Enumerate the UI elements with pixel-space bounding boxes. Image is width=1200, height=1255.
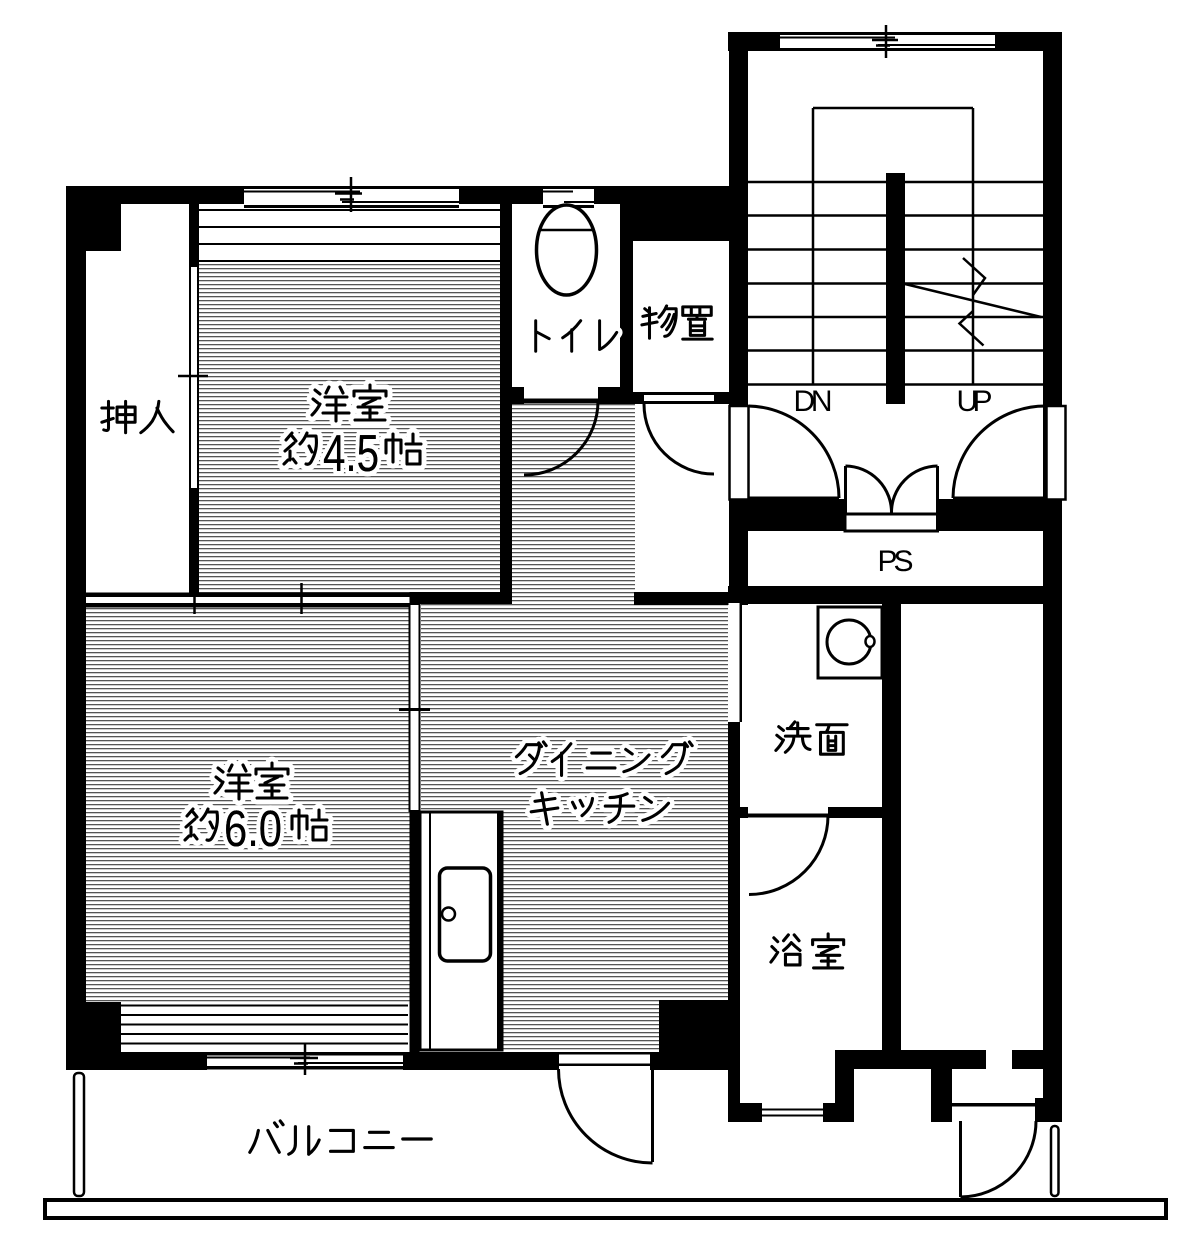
svg-text:4.5: 4.5	[323, 425, 379, 483]
svg-text:PS: PS	[878, 545, 914, 578]
svg-text:6.0: 6.0	[224, 800, 282, 857]
svg-text:DN: DN	[794, 385, 833, 418]
svg-text:UP: UP	[957, 385, 993, 418]
